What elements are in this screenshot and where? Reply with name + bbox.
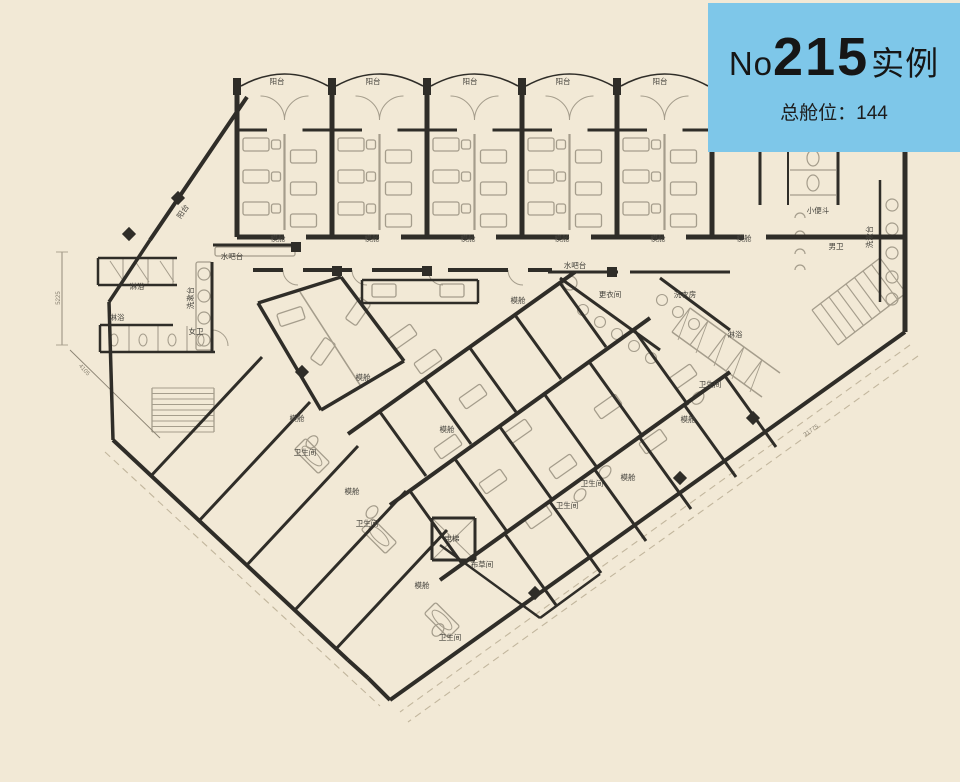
room-label: 阳台 [556,76,571,86]
room-label: 电梯 [445,533,460,543]
room-label: 模舱 [511,295,526,305]
room-label: 卫生间 [699,379,722,389]
room-label: 布草间 [471,559,494,569]
case-number: 215 [773,30,869,84]
room-label: 阳台 [270,76,285,86]
room-label: 卫生间 [581,478,604,488]
room-label: 模舱 [415,580,430,590]
room-label: 卫生间 [294,447,317,457]
case-no-prefix: No [729,47,773,80]
room-label: 洗衣房 [674,289,697,299]
dimension-label: 4105 [77,363,91,377]
room-label: 水吧台 [564,260,587,270]
page: { "badge": { "prefix": "No", "number": "… [0,0,960,777]
room-label: 淋浴 [728,329,743,339]
room-label: 淋浴 [130,281,145,291]
room-label: 阳台 [463,76,478,86]
room-label: 淋浴 [110,312,125,322]
room-label: 女卫 [189,326,204,336]
room-label: 模舱 [365,233,380,243]
room-label: 阳台 [174,202,191,220]
dimension-label: 5225 [56,291,62,305]
room-label: 模舱 [555,233,570,243]
room-label: 模舱 [621,472,636,482]
case-suffix: 实例 [871,47,939,80]
room-label: 模舱 [651,233,666,243]
room-label: 模舱 [271,233,286,243]
case-title: No215实例 [729,30,939,84]
room-label: 模舱 [461,233,476,243]
room-label: 卫生间 [556,500,579,510]
room-label: 模舱 [737,233,752,243]
room-label: 卫生间 [356,518,379,528]
room-label: 洗漱台 [864,226,874,249]
room-label: 洗漱台 [185,287,195,310]
dimension-label: 31775 [803,424,821,439]
room-label: 水吧台 [221,251,244,261]
room-label: 模舱 [681,414,696,424]
room-label: 模舱 [290,413,305,423]
room-label: 更衣间 [599,289,622,299]
capsule-count: 总舱位：144 [780,98,888,125]
case-badge: No215实例 总舱位：144 [708,3,960,152]
room-label: 阳台 [366,76,381,86]
room-label: 模舱 [440,424,455,434]
room-label: 卫生间 [439,632,462,642]
room-label: 阳台 [653,76,668,86]
room-label: 男卫 [829,242,844,251]
room-label: 小便斗 [807,205,830,215]
room-labels-layer: 阳台阳台阳台阳台阳台阳台模舱模舱模舱模舱模舱模舱模舱模舱模舱模舱模舱模舱模舱模舱… [56,76,874,642]
room-label: 模舱 [356,372,371,382]
room-label: 模舱 [345,486,360,496]
walls-layer [98,74,905,700]
